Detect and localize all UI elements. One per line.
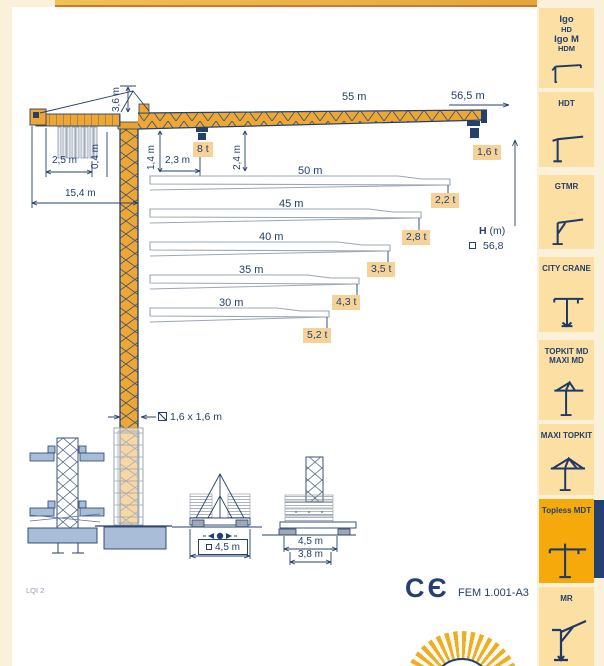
mr-crane-icon [545,616,589,662]
chassis-gauge: 3,8 m [296,550,325,560]
top-accent-bar [55,0,537,7]
jib-row-length: 45 m [279,199,303,210]
dim-apex-height: 3,6 m [112,87,122,112]
brochure-page: 3,6 m 2,5 m 0,4 m 15,4 m 1,4 m 2,3 m 2,4… [0,0,604,666]
dim-trolley-height: 2,4 m [233,145,243,170]
jib-row-length: 30 m [219,298,243,309]
sidebar-item-gtmr[interactable]: GTMR [539,175,594,249]
dim-counterjib-length: 15,4 m [65,189,96,199]
height-label: H (m) [479,226,505,237]
jib-row-capacity: 5,2 t [303,328,331,343]
max-capacity-badge: 8 t [193,142,213,157]
dim-cw-radius: 2,5 m [52,156,77,166]
sidebar-item-igo[interactable]: Igo HD Igo M HDM [539,8,594,88]
city-crane-icon [547,288,587,328]
standard-ref: FEM 1.001-A3 [458,587,529,599]
chassis-width: 4,5 m [296,537,325,547]
igo-crane-icon [550,60,584,84]
height-value: 56,8 [483,241,503,252]
sidebar-item-topless-mdt[interactable]: Topless MDT [539,499,594,583]
jib-row-capacity: 2,8 t [402,230,430,245]
sidebar-item-city-crane[interactable]: CITY CRANE [539,257,594,332]
tower-section-label: 1,6 x 1,6 m [170,412,222,423]
jib-length-label: 55 m [342,92,366,103]
jib-row-capacity: 2,2 t [431,193,459,208]
dim-min-radius: 2,3 m [165,156,190,166]
dim-cw-gap: 0,4 m [91,144,101,169]
doc-code: LQI 2 [26,586,44,595]
hdt-crane-icon [548,129,586,163]
jib-row-length: 50 m [298,166,322,177]
jib-row-length: 35 m [239,265,263,276]
square-icon [469,242,476,249]
square-icon [206,544,212,550]
ce-mark: CЄ [405,575,450,602]
tip-radius-label: 56,5 m [451,91,485,102]
dim-hook-drop: 1,4 m [147,145,157,170]
selected-tab-stripe [594,500,604,578]
tip-capacity-badge: 1,6 t [473,145,501,160]
cross-base-dim: 4,5 m [198,539,248,555]
jib-row-length: 40 m [259,232,283,243]
maxi-topkit-crane-icon [547,455,587,491]
jib-row-capacity: 4,3 t [332,295,360,310]
sidebar-item-hdt[interactable]: HDT [539,92,594,167]
sidebar-item-maxi-topkit[interactable]: MAXI TOPKIT [539,424,594,495]
topless-mdt-crane-icon [546,537,588,579]
sidebar-item-topkit[interactable]: TOPKIT MD MAXI MD [539,340,594,420]
sidebar-item-mr[interactable]: MR [539,587,594,666]
main-panel [12,7,537,666]
gtmr-crane-icon [548,211,586,245]
topkit-crane-icon [547,378,587,416]
potain-sun-logo [400,629,524,666]
jib-row-capacity: 3,5 t [367,262,395,277]
square-section-icon [158,412,167,421]
